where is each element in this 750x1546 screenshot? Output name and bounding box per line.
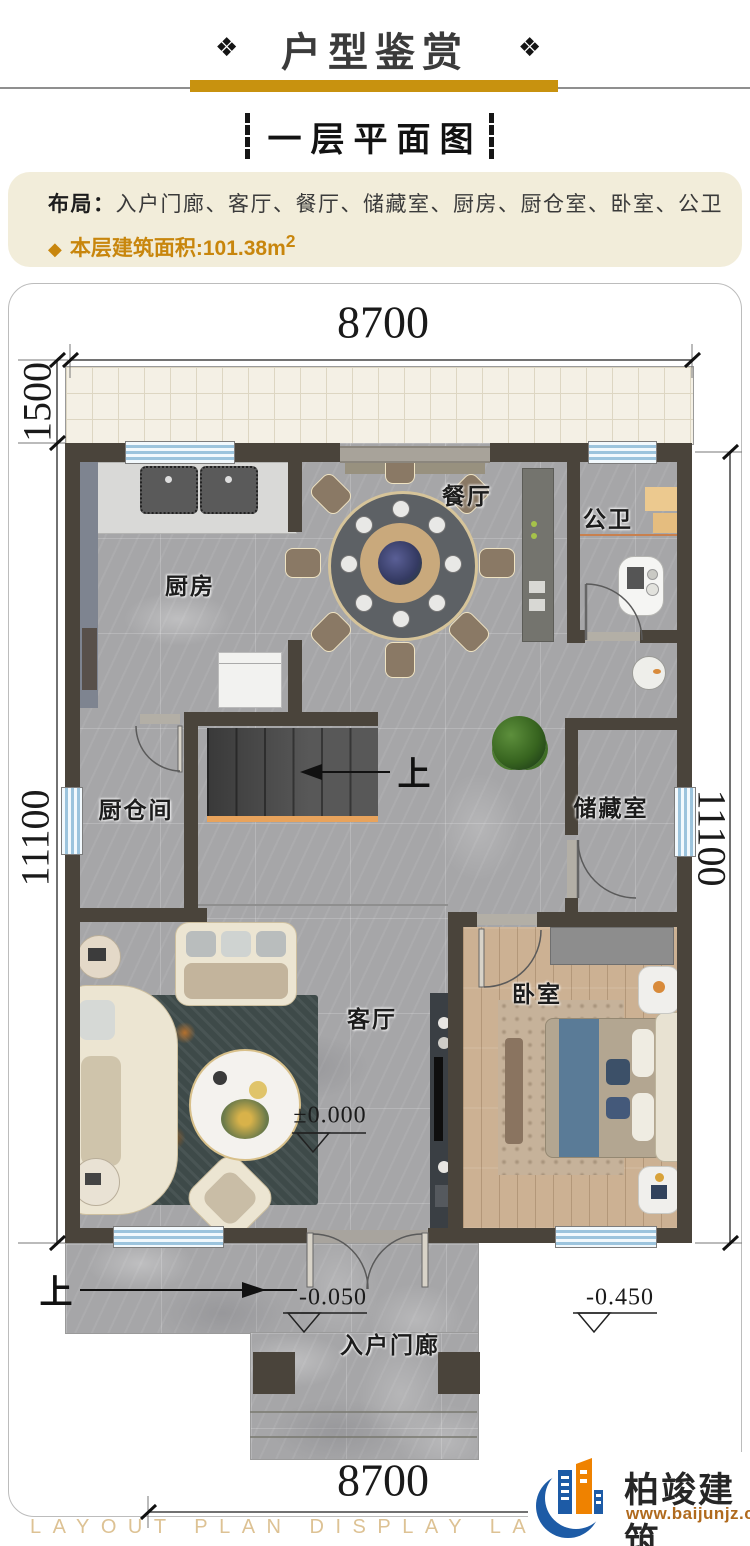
plate xyxy=(392,610,410,628)
bed-bench xyxy=(505,1038,523,1144)
wall xyxy=(184,712,198,912)
subtitle-dash-right xyxy=(489,113,494,159)
toilet xyxy=(618,556,664,616)
sofa-top xyxy=(175,922,297,1006)
room-label-storage: 储藏室 xyxy=(574,789,649,823)
bath-window xyxy=(588,441,657,464)
plate xyxy=(428,516,446,534)
living-window xyxy=(113,1226,224,1248)
plate xyxy=(392,500,410,518)
dining-chair xyxy=(385,642,415,678)
entry-threshold xyxy=(307,1230,428,1243)
wall xyxy=(288,640,302,712)
ornament-right-icon: ❖ xyxy=(518,32,541,63)
wall xyxy=(565,718,692,730)
dim-left-height: 11100 xyxy=(12,789,59,886)
kitchen-sink-left xyxy=(140,466,198,514)
bath-door-threshold xyxy=(585,632,640,641)
dining-wall-shelf xyxy=(345,462,485,474)
dim-top: 8700 xyxy=(337,296,429,349)
wall xyxy=(565,898,578,912)
stairs-up-label: 上 xyxy=(398,747,431,795)
dim-right-height: 11100 xyxy=(689,789,736,886)
wall xyxy=(65,908,207,922)
wall xyxy=(288,443,302,532)
wall xyxy=(222,1228,307,1243)
layout-line: 布局：入户门廊、客厅、餐厅、储藏室、厨房、厨仓室、卧室、公卫 xyxy=(48,188,723,218)
wall xyxy=(567,630,585,643)
layout-items: 入户门廊、客厅、餐厅、储藏室、厨房、厨仓室、卧室、公卫 xyxy=(116,193,724,216)
room-label-bedroom: 卧室 xyxy=(512,975,562,1009)
pantry-window xyxy=(61,787,83,855)
staircase xyxy=(207,728,378,818)
kitchen-small-appliance xyxy=(82,628,97,690)
subtitle-dash-left xyxy=(245,113,250,159)
level-ground: -0.450 xyxy=(586,1285,654,1312)
room-label-porch: 入户门廊 xyxy=(340,1326,440,1360)
brand-url: www.baijunjz.com xyxy=(626,1504,750,1524)
bath-divider xyxy=(580,534,677,536)
bedroom-cabinet xyxy=(550,927,674,965)
dining-chair xyxy=(479,548,515,578)
diamond-bullet-icon: ◆ xyxy=(48,239,62,259)
hall-washbasin xyxy=(632,656,666,690)
room-label-living: 客厅 xyxy=(347,1000,397,1034)
dim-bottom: 8700 xyxy=(337,1454,429,1507)
kitchen-appliance xyxy=(218,652,282,708)
wall xyxy=(65,443,80,787)
layout-summary-box: 布局：入户门廊、客厅、餐厅、储藏室、厨房、厨仓室、卧室、公卫 ◆本层建筑面积:1… xyxy=(8,172,742,267)
dining-chair xyxy=(285,548,321,578)
wall xyxy=(537,912,692,927)
bedroom-door-threshold xyxy=(477,914,537,925)
wall xyxy=(184,712,378,726)
brand-logo-icon xyxy=(528,1452,623,1546)
terrace-sliding-door xyxy=(340,446,490,463)
room-label-bath: 公卫 xyxy=(583,500,633,534)
table-centerpiece xyxy=(378,541,422,585)
side-table-top xyxy=(77,935,121,979)
page-title: 户型鉴赏 xyxy=(0,20,750,78)
plate xyxy=(444,555,462,573)
plant xyxy=(492,716,546,770)
nightstand-top xyxy=(638,966,680,1014)
level-main: ±0.000 xyxy=(293,1103,366,1130)
entry-up-label: 上 xyxy=(40,1265,73,1313)
plate xyxy=(428,594,446,612)
ornament-left-icon: ❖ xyxy=(215,32,238,63)
wall xyxy=(233,443,340,462)
nightstand-bottom xyxy=(638,1166,680,1214)
terrace-floor xyxy=(65,366,694,445)
bath-vanity xyxy=(645,487,677,511)
plate xyxy=(340,555,358,573)
floorplan-page: 户型鉴赏 ❖ ❖ 一层平面图 布局：入户门廊、客厅、餐厅、储藏室、厨房、厨仓室、… xyxy=(0,0,750,1546)
wall xyxy=(655,1228,692,1243)
area-line: ◆本层建筑面积:101.38m2 xyxy=(48,231,295,262)
porch-upper-slab xyxy=(65,1243,479,1334)
wall xyxy=(65,1228,113,1243)
staircase-edge xyxy=(207,816,378,822)
wall xyxy=(677,443,692,787)
porch-pillar-left xyxy=(253,1352,295,1394)
pantry-door-threshold xyxy=(140,714,180,724)
plate xyxy=(355,594,373,612)
room-label-pantry: 厨仓间 xyxy=(99,791,174,825)
title-underline xyxy=(190,80,558,92)
layout-label: 布局： xyxy=(48,193,116,216)
kitchen-sink-right xyxy=(200,466,258,514)
wall xyxy=(567,443,580,643)
wall xyxy=(640,630,692,643)
kitchen-window xyxy=(125,441,235,464)
room-label-dining: 餐厅 xyxy=(442,477,492,511)
room-label-kitchen: 厨房 xyxy=(165,567,215,601)
dim-terrace-depth: 1500 xyxy=(14,362,61,442)
dining-sideboard xyxy=(522,468,554,642)
wall xyxy=(448,912,463,1243)
plan-subtitle: 一层平面图 xyxy=(0,112,750,161)
bath-vanity-2 xyxy=(653,513,677,533)
plate xyxy=(355,516,373,534)
level-porch: -0.050 xyxy=(299,1285,367,1312)
area-superscript: 2 xyxy=(286,231,296,251)
coffee-table xyxy=(189,1049,301,1161)
area-text: 本层建筑面积:101.38m xyxy=(70,237,286,260)
porch-pillar-right xyxy=(438,1352,480,1394)
storage-door-threshold xyxy=(567,840,578,898)
bedroom-window xyxy=(555,1226,657,1248)
bed xyxy=(545,1018,662,1158)
